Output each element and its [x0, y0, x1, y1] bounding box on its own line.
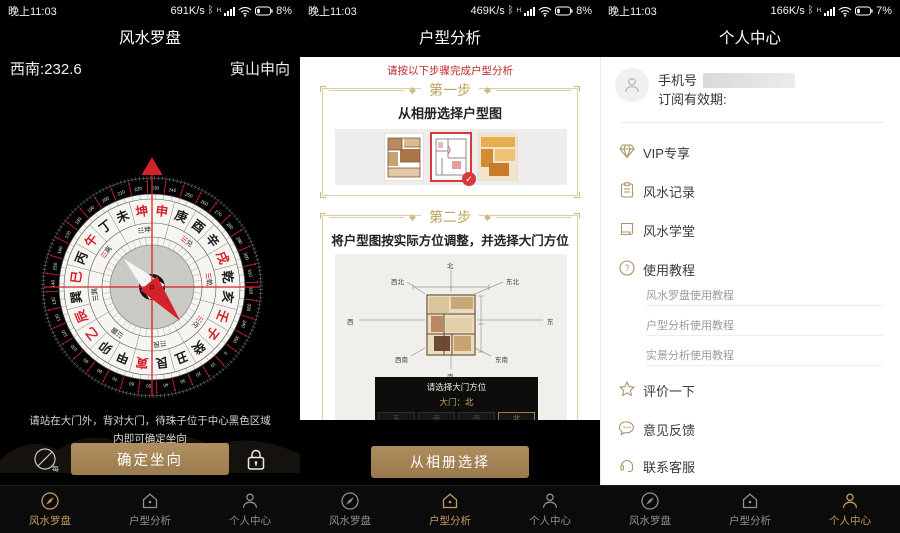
- status-bar-2: 晚上11:03 469K/s ᛒ H 8%: [300, 0, 600, 22]
- direction-label-northwest: 西北: [391, 276, 404, 286]
- direction-label-northeast: 东北: [506, 276, 519, 286]
- status-bar-3: 晚上11:03 166K/s ᛒ H 7%: [600, 0, 900, 22]
- battery-percent: 8%: [276, 5, 292, 17]
- menu-item-rate[interactable]: 评价一下: [601, 375, 900, 405]
- step2-header: 第二步: [421, 207, 479, 227]
- svg-text:巳: 巳: [69, 270, 85, 285]
- phone-row: 手机号: [658, 70, 795, 89]
- status-bar-1: 晚上11:03 691K/s ᛒ H 8%: [0, 0, 300, 22]
- svg-text:350: 350: [232, 335, 240, 345]
- avatar: [615, 68, 649, 102]
- direction-label-west: 西: [347, 316, 354, 326]
- svg-text:坤: 坤: [135, 203, 149, 220]
- phone-number-redacted: [703, 73, 795, 88]
- tab-fengshui-compass[interactable]: 风水罗盘: [300, 486, 400, 533]
- menu-item-school[interactable]: 风水学堂: [601, 215, 900, 245]
- compass-tab-icon: [340, 491, 360, 511]
- svg-text:乾: 乾: [220, 270, 237, 285]
- wifi-icon: [838, 6, 852, 17]
- step2-instruction: 将户型图按实际方位调整，并选择大门方位: [323, 230, 577, 249]
- chat-icon: [618, 419, 636, 437]
- status-time: 晚上11:03: [308, 3, 357, 19]
- svg-text:50: 50: [146, 383, 152, 388]
- svg-text:280: 280: [225, 221, 234, 230]
- svg-text:寅: 寅: [134, 355, 149, 372]
- hspa-indicator: H: [517, 8, 521, 14]
- person-tab-icon: [240, 491, 260, 511]
- step1-card: 第一步 从相册选择户型图 ✓: [322, 88, 578, 196]
- signal-icon: [224, 7, 235, 16]
- select-from-album-button[interactable]: 从相册选择: [371, 446, 529, 478]
- svg-text:190: 190: [86, 204, 95, 213]
- diamond-ornament: [409, 213, 416, 220]
- step1-instruction: 从相册选择户型图: [323, 103, 577, 122]
- signal-icon: [824, 7, 835, 16]
- question-icon: ?: [618, 259, 636, 277]
- svg-text:30: 30: [179, 378, 186, 385]
- svg-text:120: 120: [54, 313, 62, 322]
- svg-text:0: 0: [223, 351, 229, 356]
- status-time: 晚上11:03: [8, 3, 57, 19]
- svg-text:?: ?: [624, 263, 629, 273]
- svg-text:40: 40: [162, 382, 169, 388]
- svg-text:每: 每: [52, 464, 59, 473]
- svg-text:110: 110: [60, 329, 68, 338]
- person-tab-icon: [840, 491, 860, 511]
- svg-text:210: 210: [117, 189, 126, 197]
- direction-label-east: 东: [547, 316, 554, 326]
- divider: [621, 122, 884, 123]
- battery-icon: [855, 6, 873, 16]
- tutorial-item-reality[interactable]: 实景分析使用教程: [646, 347, 884, 363]
- diamond-icon: [618, 142, 636, 160]
- direction-label-southeast: 东南: [495, 354, 508, 364]
- svg-text:90: 90: [82, 357, 89, 364]
- direction-label-southwest: 西南: [395, 354, 408, 364]
- svg-text:220: 220: [134, 186, 143, 193]
- personal-center-screen: 晚上11:03 166K/s ᛒ H 7% 个人中心 手机号 订阅有效期:: [600, 0, 900, 533]
- battery-icon: [555, 6, 573, 16]
- luopan-compass: 子癸丑艮寅甲卯乙辰巽巳丙午丁未坤申庚酉辛戌乾亥壬☵坎☶艮☳震☴巽☲离☷坤☱兑☰乾…: [0, 150, 300, 400]
- tab-floorplan-analysis[interactable]: 户型分析: [700, 486, 800, 533]
- svg-text:260: 260: [200, 199, 210, 207]
- menu-item-support[interactable]: 联系客服: [601, 451, 900, 481]
- headset-icon: [618, 456, 636, 474]
- tab-floorplan-analysis[interactable]: 户型分析: [100, 486, 200, 533]
- home-tab-icon: [140, 491, 160, 511]
- tab-bar-3: 风水罗盘 户型分析 个人中心: [600, 485, 900, 533]
- svg-text:130: 130: [51, 296, 58, 305]
- dialog-title: 请选择大门方位: [375, 381, 538, 393]
- direction-label-north: 北: [447, 260, 454, 270]
- divider: [646, 335, 883, 336]
- wifi-icon: [238, 6, 252, 17]
- wifi-icon: [538, 6, 552, 17]
- svg-text:270: 270: [214, 209, 223, 218]
- home-tab-icon: [440, 491, 460, 511]
- menu-item-records[interactable]: 风水记录: [601, 176, 900, 206]
- svg-text:300: 300: [242, 252, 250, 261]
- status-time: 晚上11:03: [608, 3, 657, 19]
- book-icon: [618, 220, 636, 238]
- svg-text:240: 240: [168, 187, 177, 193]
- signal-icon: [524, 7, 535, 16]
- phone-label: 手机号: [658, 73, 697, 88]
- tab-fengshui-compass[interactable]: 风水罗盘: [600, 486, 700, 533]
- network-speed: 166K/s: [771, 5, 805, 17]
- svg-text:150: 150: [52, 262, 58, 271]
- home-tab-icon: [740, 491, 760, 511]
- svg-text:160: 160: [57, 245, 64, 254]
- hspa-indicator: H: [817, 8, 821, 14]
- svg-text:70: 70: [111, 376, 118, 382]
- floorplan-thumbnail-2-selected[interactable]: ✓: [432, 134, 470, 180]
- svg-text:340: 340: [240, 319, 247, 328]
- compass-tab-icon: [640, 491, 660, 511]
- thumbnail-strip: ✓: [335, 129, 567, 185]
- tutorial-item-floorplan[interactable]: 户型分析使用教程: [646, 317, 884, 333]
- demo-floorplan-image: [426, 294, 476, 356]
- selected-check-icon: ✓: [462, 172, 476, 186]
- tab-bar-2: 风水罗盘 户型分析 个人中心: [300, 485, 600, 533]
- compass-screen: 晚上11:03 691K/s ᛒ H 8% 风水罗盘 西南:232.: [0, 0, 300, 533]
- diamond-ornament: [484, 86, 491, 93]
- tab-fengshui-compass[interactable]: 风水罗盘: [0, 486, 100, 533]
- confirm-direction-button[interactable]: 确定坐向: [71, 443, 229, 475]
- svg-text:亥: 亥: [220, 290, 237, 305]
- page-title: 个人中心: [600, 22, 900, 57]
- svg-text:200: 200: [101, 195, 111, 204]
- app-root: 晚上11:03 691K/s ᛒ H 8% 风水罗盘 西南:232.: [0, 0, 900, 533]
- tab-bar-1: 风水罗盘 户型分析 个人中心: [0, 485, 300, 533]
- menu-item-feedback[interactable]: 意见反馈: [601, 414, 900, 444]
- diamond-ornament: [484, 213, 491, 220]
- svg-text:330: 330: [246, 303, 252, 312]
- svg-text:20: 20: [195, 371, 202, 378]
- page-title: 风水罗盘: [0, 22, 300, 57]
- svg-text:310: 310: [247, 269, 254, 278]
- orientation-reading: 寅山申向: [230, 58, 290, 79]
- door-value: 北: [465, 397, 474, 407]
- tab-personal-center[interactable]: 个人中心: [800, 486, 900, 533]
- svg-text:170: 170: [64, 230, 72, 240]
- floorplan-thumbnail-3[interactable]: [479, 134, 517, 180]
- menu-item-vip[interactable]: VIP专享: [601, 137, 900, 167]
- hspa-indicator: H: [217, 8, 221, 14]
- clipboard-icon: [618, 181, 636, 199]
- diamond-ornament: [409, 86, 416, 93]
- tutorial-item-compass[interactable]: 风水罗盘使用教程: [646, 287, 884, 303]
- svg-text:100: 100: [69, 343, 78, 352]
- divider: [646, 365, 883, 366]
- svg-text:80: 80: [96, 367, 103, 374]
- svg-text:180: 180: [74, 216, 83, 225]
- floorplan-thumbnail-1[interactable]: [385, 134, 423, 180]
- svg-text:250: 250: [184, 192, 193, 199]
- compass-tab-icon: [40, 491, 60, 511]
- floorplan-analysis-screen: 晚上11:03 469K/s ᛒ H 8% 户型分析 请按以下步骤完成户型分析 …: [300, 0, 600, 533]
- bluetooth-icon: ᛒ: [208, 6, 214, 16]
- tab-floorplan-analysis[interactable]: 户型分析: [400, 486, 500, 533]
- tab-personal-center[interactable]: 个人中心: [200, 486, 300, 533]
- battery-percent: 7%: [876, 5, 892, 17]
- svg-text:申: 申: [155, 203, 169, 219]
- lock-icon[interactable]: [244, 447, 268, 473]
- divider: [646, 305, 883, 306]
- steps-intro-text: 请按以下步骤完成户型分析: [300, 63, 600, 78]
- direction-reading: 西南:232.6: [10, 58, 82, 79]
- tab-personal-center[interactable]: 个人中心: [500, 486, 600, 533]
- svg-text:巽: 巽: [69, 289, 85, 304]
- person-tab-icon: [540, 491, 560, 511]
- svg-text:60: 60: [128, 381, 134, 387]
- network-speed: 469K/s: [471, 5, 505, 17]
- bluetooth-icon: ᛒ: [808, 6, 814, 16]
- bluetooth-icon: ᛒ: [508, 6, 514, 16]
- page-title: 户型分析: [300, 22, 600, 57]
- battery-percent: 8%: [576, 5, 592, 17]
- calibrate-icon[interactable]: 每: [32, 446, 60, 474]
- battery-icon: [255, 6, 273, 16]
- door-value-row: 大门：北: [375, 396, 538, 408]
- subscription-row: 订阅有效期:: [658, 89, 727, 108]
- svg-text:290: 290: [235, 236, 244, 246]
- door-direction-dialog: 请选择大门方位 大门：北 东 南 西 北: [375, 377, 538, 420]
- star-icon: [618, 380, 636, 398]
- svg-text:艮: 艮: [154, 355, 169, 371]
- svg-text:10: 10: [209, 361, 216, 368]
- footer-area: 从相册选择: [300, 420, 600, 485]
- person-icon: [622, 75, 642, 95]
- step1-header: 第一步: [421, 80, 479, 100]
- menu-item-tutorials[interactable]: ? 使用教程: [601, 254, 900, 284]
- network-speed: 691K/s: [171, 5, 205, 17]
